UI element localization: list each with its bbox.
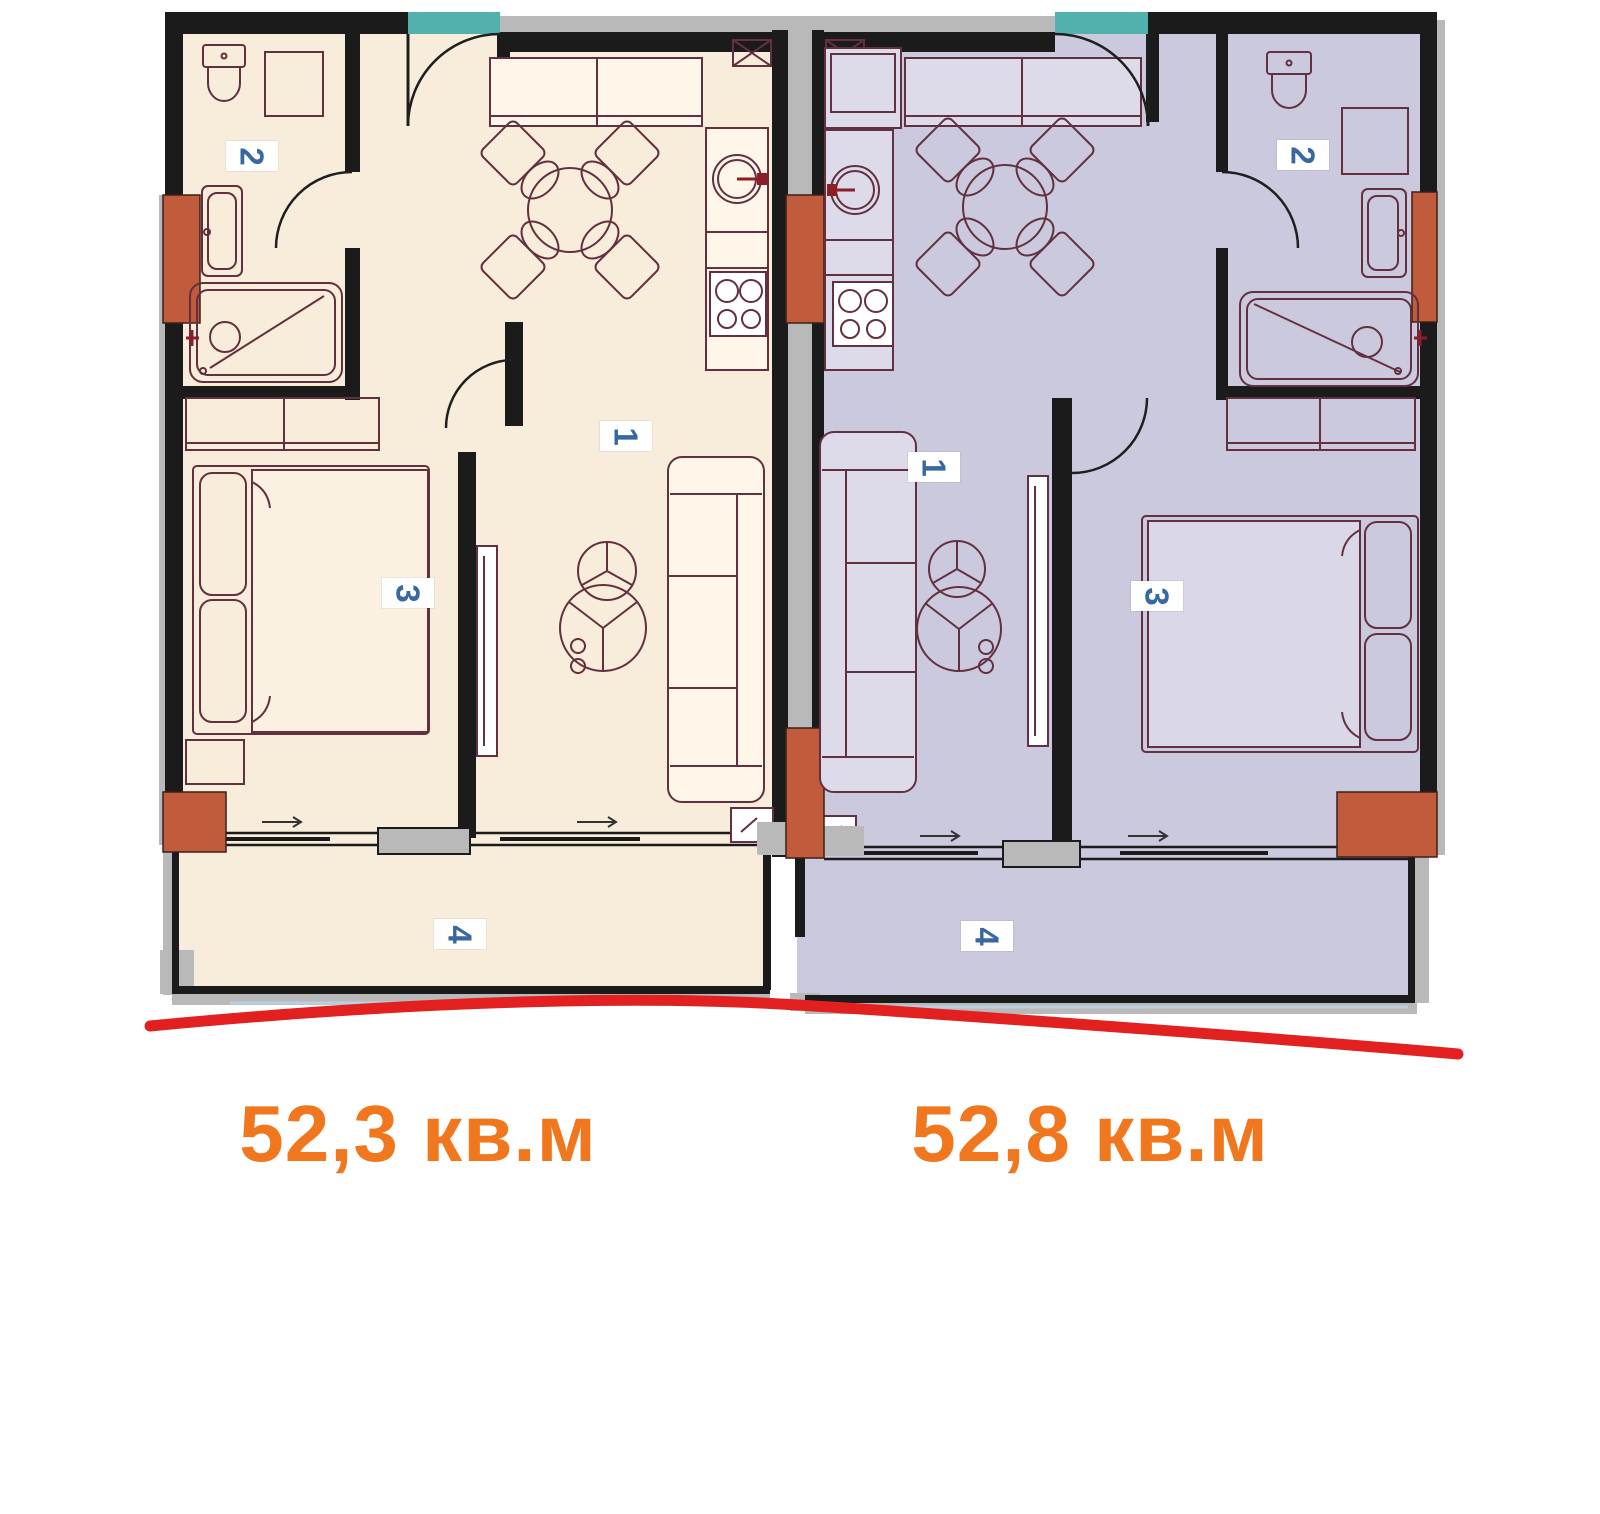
wardrobe-symbol — [490, 58, 702, 126]
room-number-left-4: 4 — [434, 919, 486, 949]
kitchen-counter-symbol — [706, 128, 768, 370]
area-label-left: 52,3 кв.м — [158, 1088, 678, 1180]
room-number-right-1: 1 — [908, 452, 960, 482]
kitchen-counter-symbol — [825, 48, 901, 370]
room-number-left-2: 2 — [226, 141, 278, 171]
entry-door-teal-right — [1055, 12, 1148, 34]
wardrobe-symbol — [905, 58, 1141, 126]
floor-plan-svg — [0, 0, 1600, 1514]
room-number-left-1: 1 — [600, 421, 652, 451]
room-number-right-2: 2 — [1277, 140, 1329, 170]
site-boundary — [150, 1000, 1458, 1054]
floor-plan-page: 1 2 3 4 1 2 3 4 52,3 кв.м 52,8 кв.м — [0, 0, 1600, 1514]
room-number-right-4: 4 — [961, 921, 1013, 951]
tv-stand-symbol — [1028, 476, 1048, 746]
tv-stand-symbol — [477, 546, 497, 756]
sofa-symbol — [668, 457, 764, 802]
sofa-symbol — [820, 432, 916, 792]
area-label-right: 52,8 кв.м — [830, 1088, 1350, 1180]
room-number-left-3: 3 — [382, 578, 434, 608]
entry-door-teal-left — [408, 12, 500, 34]
room-number-right-3: 3 — [1131, 581, 1183, 611]
